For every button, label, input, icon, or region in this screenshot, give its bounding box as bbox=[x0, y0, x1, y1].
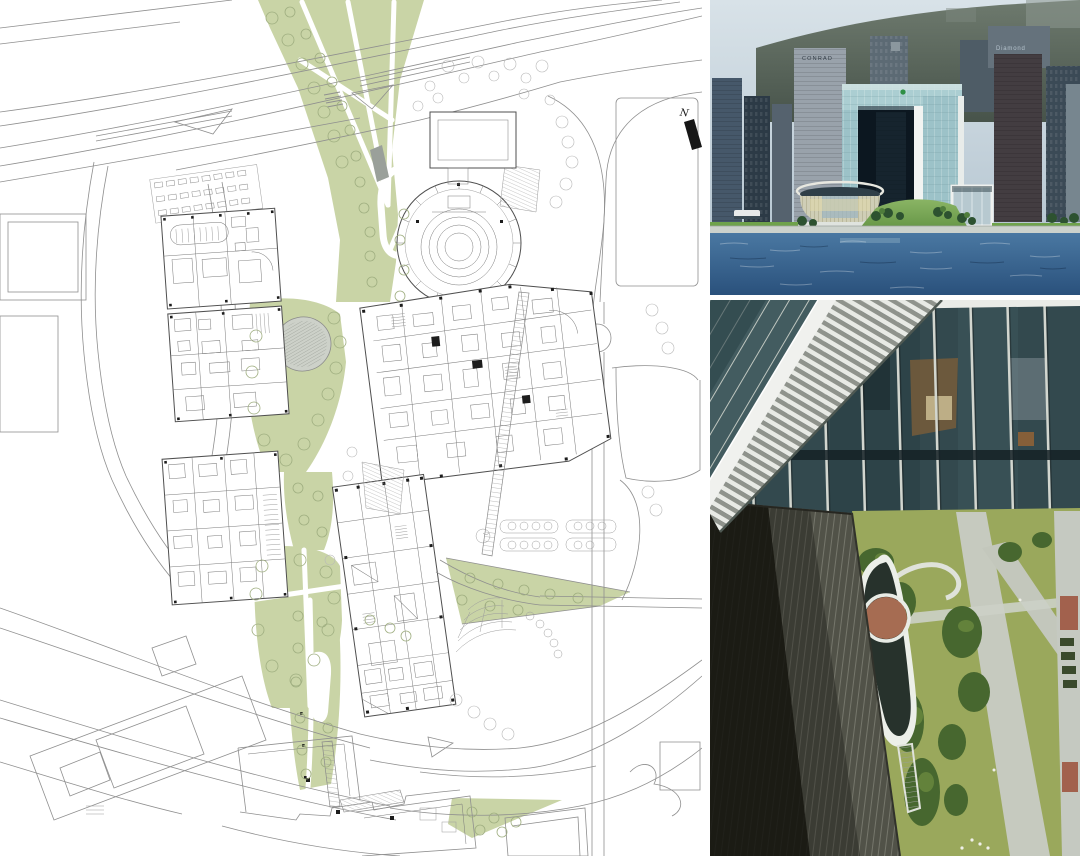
diamond-sign: Diamond bbox=[996, 46, 1026, 52]
architecture-collage: N bbox=[0, 0, 1080, 856]
entry-plaza-hatch bbox=[362, 462, 404, 514]
conrad-sign: CONRAD bbox=[802, 56, 833, 62]
site-plan-drawing: N bbox=[0, 0, 702, 856]
west-wing-building bbox=[161, 208, 289, 421]
office-block-building bbox=[162, 451, 288, 605]
harbour-photo-panel: CONRAD Diamond bbox=[710, 0, 1080, 295]
ferry-boat bbox=[734, 210, 760, 219]
red-oval-plaza bbox=[865, 597, 907, 639]
site-plan-panel: N bbox=[0, 0, 702, 856]
aerial-photo-panel bbox=[710, 300, 1080, 856]
harbour-water bbox=[710, 233, 1080, 295]
aerial-photo bbox=[710, 300, 1080, 856]
emblem-icon bbox=[900, 89, 905, 94]
harbour-rendering: CONRAD Diamond bbox=[710, 0, 1080, 295]
east-wing-building bbox=[359, 276, 613, 486]
